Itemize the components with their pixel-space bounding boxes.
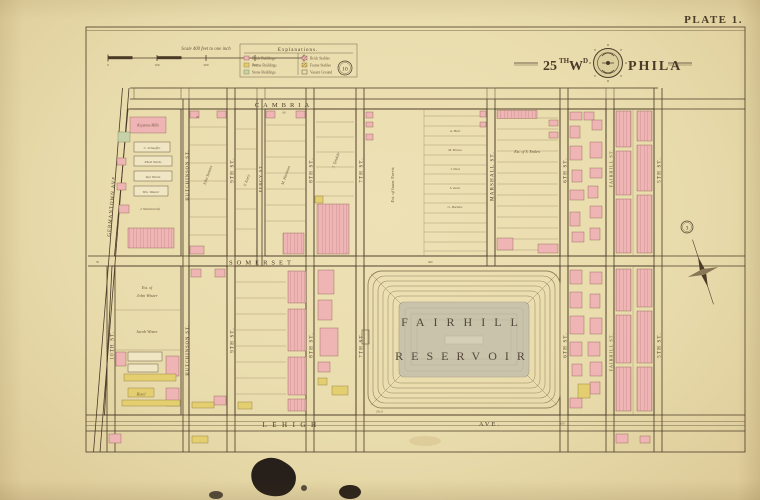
title-ward-word: W (569, 59, 583, 74)
property-label: John Somers (202, 164, 214, 185)
property-label: J. Paul (450, 167, 460, 171)
legend-item: Brick Stables (310, 56, 330, 60)
property-label: Est. of (141, 285, 153, 290)
street-label-8th-n: 8TH ST. (310, 157, 315, 183)
street-label-9th-s: 9TH ST. (231, 327, 236, 353)
property-label: S. Keen (450, 186, 461, 190)
property-label: Jacob Wister (136, 329, 158, 334)
property-label: M. Brown (447, 148, 462, 152)
dim-label: 50 (96, 260, 100, 264)
scale-tick: 0 (107, 63, 109, 67)
street-label-lehigh: LEHIGH (262, 421, 321, 429)
street-label-hutchinson-n: HUTCHINSON ST. (185, 149, 190, 200)
property-label: Hotel (136, 392, 147, 397)
fairhill-reservoir: FAIRHILL RESERVOIR (362, 271, 560, 408)
street-label-cambria: CAMBRIA (255, 102, 313, 109)
scale-label: Scale 400 feet to one inch (181, 47, 231, 52)
property-label: P. Keely (243, 174, 251, 188)
legend-item: Frame Stables (310, 63, 332, 67)
reservoir-label-2: RESERVOIR (395, 349, 533, 363)
page-stains (209, 436, 441, 499)
street-label-6th-s: 6TH ST. (564, 332, 569, 358)
property-label: Est. of S. Emlen (513, 149, 539, 154)
reservoir-label-1: FAIRHILL (401, 315, 527, 329)
street-label-hutchinson-s: HUTCHINSON ST. (185, 324, 190, 375)
plate-label: PLATE 1. (684, 14, 743, 26)
property-label: J. Wolstencroft (140, 207, 161, 211)
property-label: M. Hartman (279, 165, 291, 186)
legend-item: Brick Buildings (252, 56, 276, 60)
title-ward-number: 25 (543, 59, 557, 74)
city-seal-icon (589, 44, 627, 82)
dim-label: 100 (560, 422, 565, 426)
dim-label: 20 (196, 115, 200, 119)
property-label: Plush Works (144, 160, 163, 164)
plate-ref-right-number: 3 (686, 225, 689, 231)
plate-ref-top: 10 (338, 61, 352, 75)
map-title: 25 TH W D PHILA (514, 44, 692, 82)
dim-label: 400 (428, 260, 433, 264)
property-label: J. Tyndale (330, 151, 340, 168)
street-label-fairhill-n: FAIRHILL ST. (609, 149, 614, 188)
street-label-9th-n: 9TH ST. (231, 157, 236, 183)
scale-tick: 200 (203, 63, 208, 67)
legend-swatch-stone (244, 70, 249, 74)
street-label-lehigh-ave: AVE. (479, 421, 501, 428)
street-label-somerset: SOMERSET (229, 260, 295, 267)
legend-item: Stone Buildings (252, 70, 276, 74)
germantown-ave-lines (94, 88, 130, 452)
property-label: Dye Works (145, 175, 161, 179)
atlas-map: PLATE 1. Scale 400 feet to one inch 0 10… (0, 0, 760, 500)
compass-icon (677, 235, 728, 310)
street-label-7th-n: 7TH ST. (360, 157, 365, 183)
lehigh-track-lines (86, 422, 745, 426)
street-label-5th-n: 5TH ST. (658, 157, 663, 183)
street-label-5th-s: 5TH ST. (658, 332, 663, 358)
legend-swatch-brick-stable-hatch (302, 56, 307, 60)
plate-ref-top-number: 10 (342, 66, 348, 72)
legend-swatch-vacant (302, 70, 307, 74)
property-label: G. Bockius (448, 205, 464, 209)
property-label: John Wister (137, 293, 158, 298)
legend-item: Vacant Ground (310, 70, 332, 74)
legend-item: Frame Buildings (252, 63, 277, 67)
atlas-page: PLATE 1. Scale 400 feet to one inch 0 10… (0, 0, 760, 500)
street-label-7th-s: 7TH ST. (360, 332, 365, 358)
street-label-germantown: GERMANTOWN AVE. (107, 173, 118, 237)
property-label: A. Hart (449, 129, 461, 133)
property-label: C. Schaeffer (144, 146, 161, 150)
legend-title: Explanations. (278, 48, 318, 53)
dim-label: 60 (283, 111, 287, 115)
street-label-8th-s: 8TH ST. (310, 332, 315, 358)
property-label: Keystone Mills (136, 124, 159, 128)
property-label: Wm. Weaver (142, 190, 160, 194)
plate-ref-right: 3 (681, 221, 693, 233)
street-label-marshall: MARSHALL ST. (491, 151, 496, 201)
legend-swatch-frame-stable-hatch (302, 63, 307, 67)
legend-swatch-frame (244, 63, 249, 67)
street-label-10th: 10TH ST. (111, 330, 116, 359)
scale-tick: 100 (154, 63, 159, 67)
street-label-fairhill-s: FAIRHILL ST. (609, 333, 614, 372)
title-ward-word-sup: D (583, 57, 588, 65)
title-city: PHILA (628, 59, 682, 74)
street-label-percy: PERCY ST. (258, 163, 263, 192)
legend-swatch-brick (244, 56, 249, 60)
dim-label: 231.6 (376, 410, 383, 414)
street-label-6th-n: 6TH ST. (564, 157, 569, 183)
property-label: Est. of Isaac Norris (390, 167, 395, 204)
